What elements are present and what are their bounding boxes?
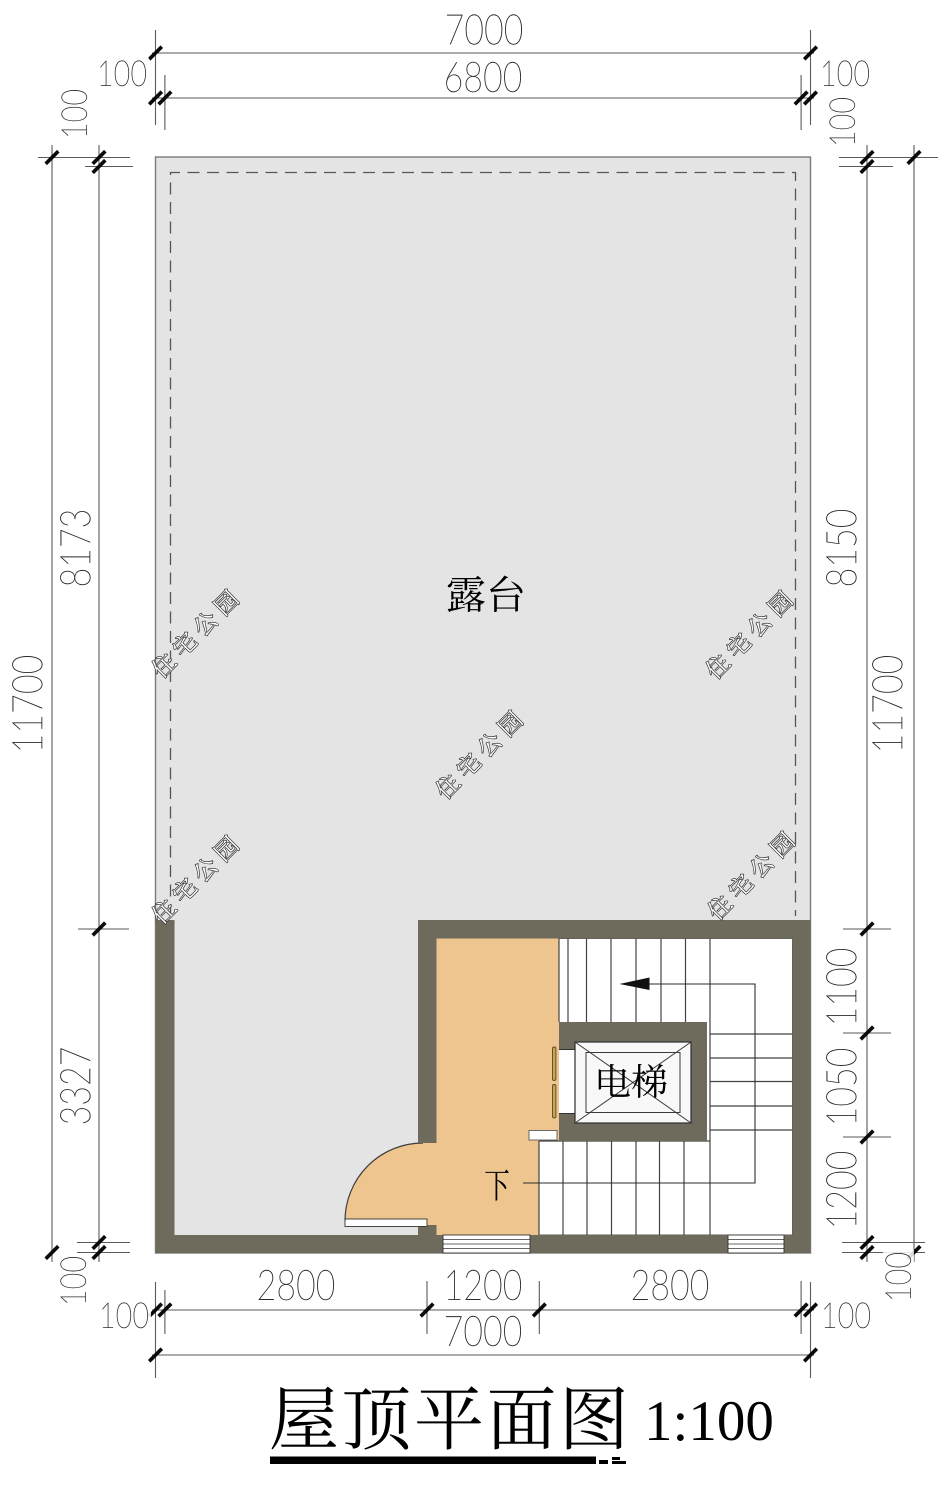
svg-text:1:100: 1:100 bbox=[644, 1390, 774, 1453]
